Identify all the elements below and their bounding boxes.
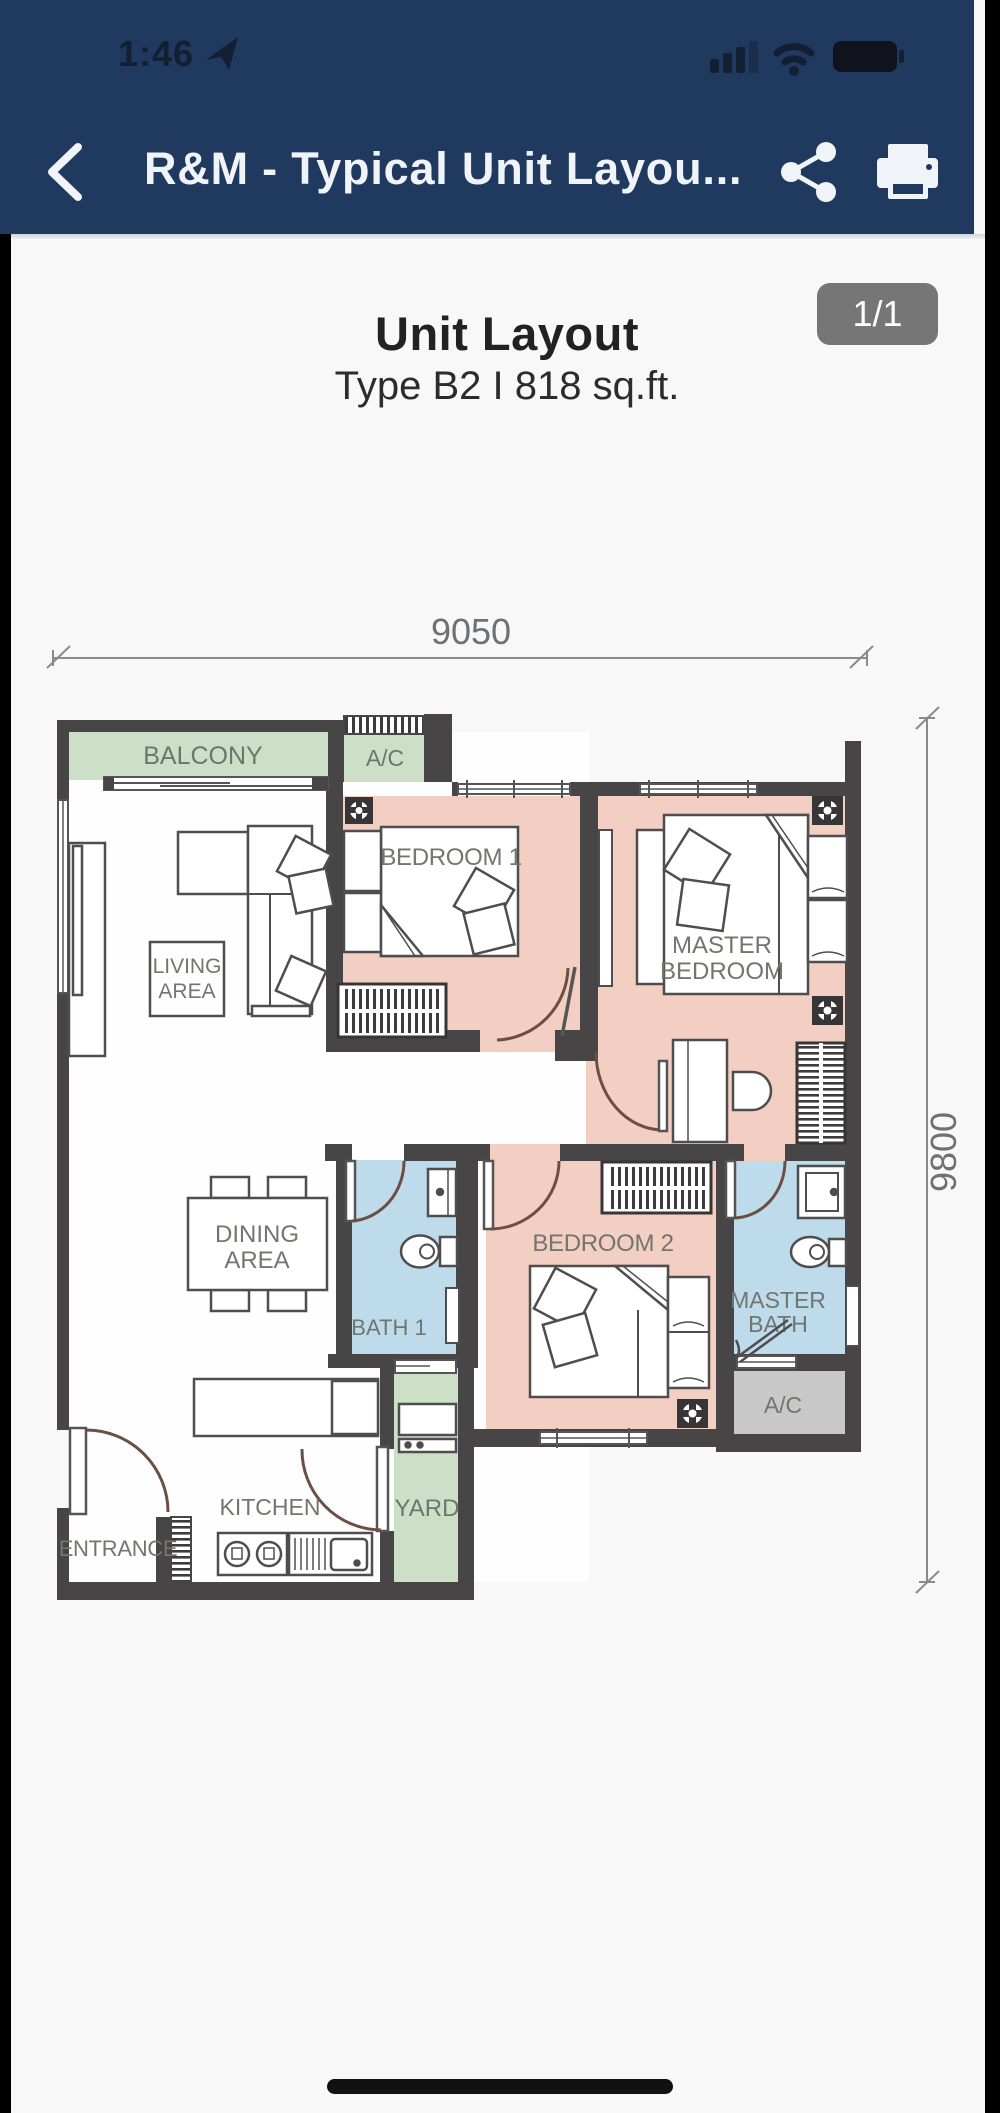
svg-text:AREA: AREA	[224, 1247, 289, 1274]
svg-text:MASTER: MASTER	[672, 932, 772, 959]
svg-text:BEDROOM 1: BEDROOM 1	[380, 844, 521, 871]
svg-text:KITCHEN: KITCHEN	[220, 1494, 321, 1520]
svg-text:A/C: A/C	[366, 745, 404, 771]
svg-text:LIVING: LIVING	[153, 955, 222, 978]
svg-text:BEDROOM 2: BEDROOM 2	[532, 1230, 673, 1257]
svg-text:BEDROOM: BEDROOM	[660, 958, 784, 985]
svg-text:ENTRANCE: ENTRANCE	[59, 1536, 178, 1561]
svg-text:9050: 9050	[431, 611, 511, 652]
svg-text:AREA: AREA	[158, 980, 215, 1003]
svg-text:A/C: A/C	[764, 1392, 802, 1418]
svg-text:YARD: YARD	[395, 1495, 460, 1522]
svg-text:BATH 1: BATH 1	[351, 1315, 426, 1340]
svg-text:DINING: DINING	[215, 1221, 299, 1248]
svg-text:9800: 9800	[923, 1112, 964, 1192]
svg-text:BALCONY: BALCONY	[143, 742, 263, 770]
svg-text:MASTER: MASTER	[730, 1287, 826, 1313]
